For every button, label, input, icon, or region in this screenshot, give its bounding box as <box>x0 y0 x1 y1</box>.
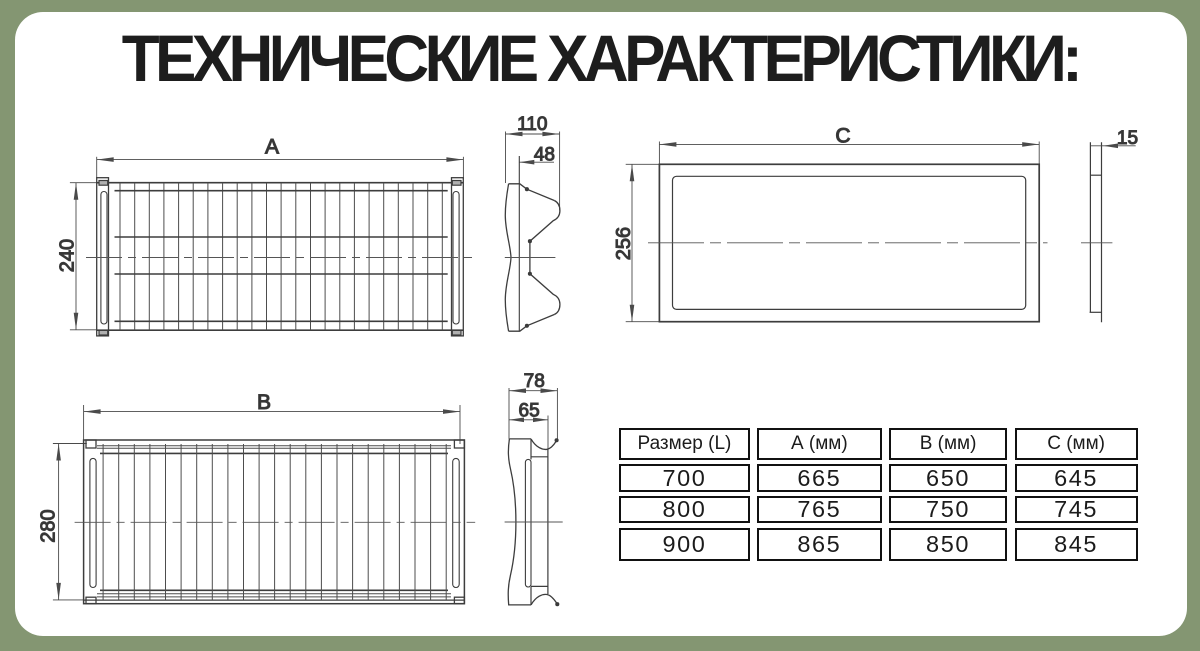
svg-text:240: 240 <box>57 239 79 272</box>
svg-text:A: A <box>265 136 279 159</box>
svg-text:78: 78 <box>524 371 545 392</box>
svg-text:256: 256 <box>613 227 635 260</box>
svg-text:C: C <box>835 124 850 147</box>
svg-text:48: 48 <box>534 145 555 166</box>
svg-text:15: 15 <box>1117 128 1138 149</box>
svg-text:280: 280 <box>38 509 60 542</box>
svg-text:65: 65 <box>519 400 540 421</box>
svg-text:B: B <box>257 391 271 414</box>
svg-text:110: 110 <box>517 114 547 135</box>
